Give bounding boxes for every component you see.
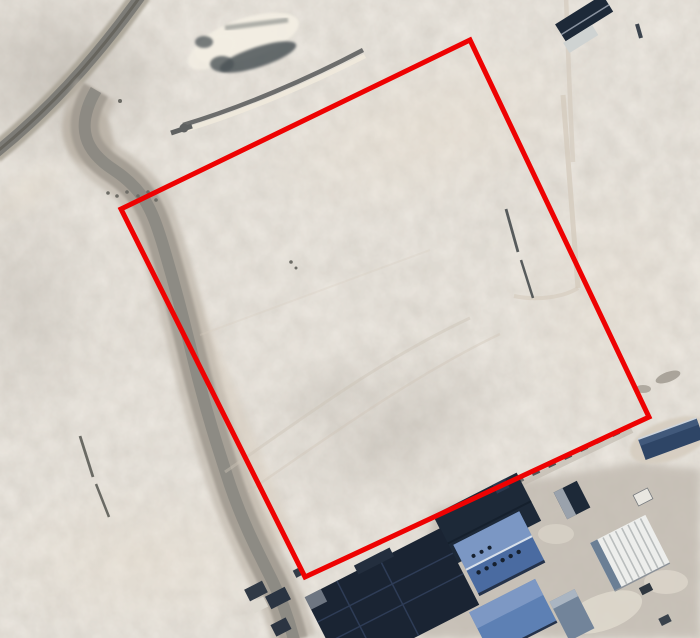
satellite-image: [0, 0, 700, 638]
ground-dot: [115, 194, 119, 198]
ground-dot: [106, 191, 110, 195]
spoil-mound-shadow: [195, 36, 213, 48]
ground-dot: [125, 190, 129, 194]
ground-dot: [154, 198, 158, 202]
light-apron-patch: [538, 524, 574, 544]
ground-dot: [289, 260, 293, 264]
spoil-mound-shadow: [210, 56, 234, 72]
ground-dot: [118, 99, 122, 103]
satellite-image-viewport: [0, 0, 700, 638]
berm-end-knob: [180, 124, 189, 133]
ground-dot: [295, 267, 298, 270]
ground-dot: [136, 194, 140, 198]
